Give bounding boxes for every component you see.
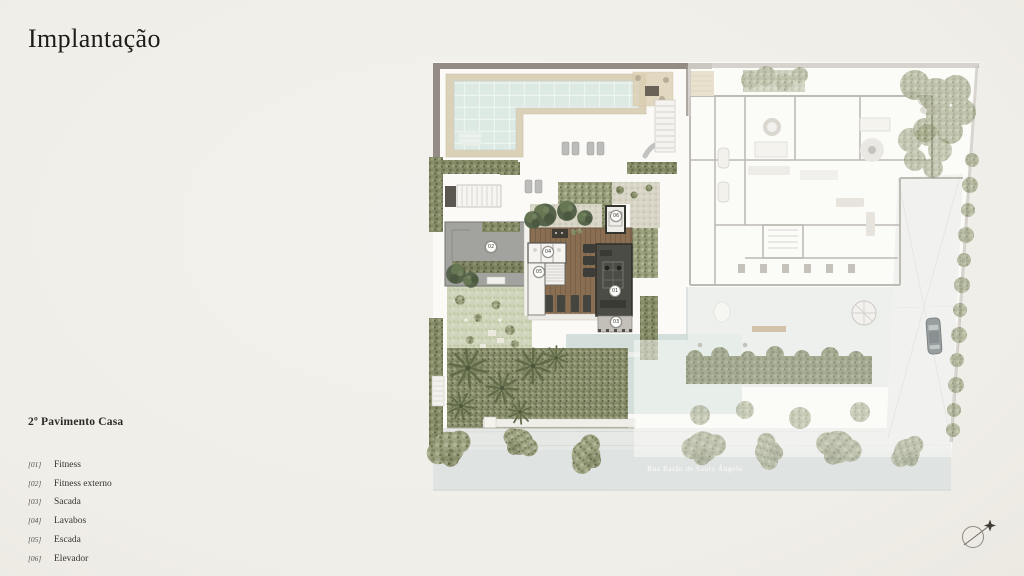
car (926, 318, 942, 355)
legend-item-number: [05] (28, 532, 54, 548)
legend-item-label: Escada (54, 535, 81, 545)
legend-item-number: [02] (28, 476, 54, 492)
plan-marker-03: 03 (610, 316, 622, 328)
north-arrow-icon (984, 520, 996, 532)
site-plan: Rua Barão de Santo Ângelo 010203040506 (0, 0, 1024, 576)
legend: 2º Pavimento Casa [01]Fitness [02]Fitnes… (28, 416, 248, 428)
legend-item-number: [06] (28, 551, 54, 567)
legend-item-label: Elevador (54, 554, 88, 564)
legend-item: [02]Fitness externo (28, 474, 112, 493)
plan-marker-04: 04 (542, 246, 554, 258)
compass (963, 520, 997, 548)
legend-item-label: Fitness (54, 460, 81, 470)
legend-item: [03]Sacada (28, 492, 112, 511)
legend-item: [04]Lavabos (28, 511, 112, 530)
plan-marker-06: 06 (610, 210, 622, 222)
legend-item-number: [01] (28, 457, 54, 473)
plan-marker-01: 01 (609, 285, 621, 297)
legend-item-number: [03] (28, 494, 54, 510)
legend-items: [01]Fitness [02]Fitness externo [03]Saca… (28, 455, 112, 567)
plan-marker-05: 05 (533, 266, 545, 278)
palm-garden (432, 342, 635, 428)
legend-item-label: Fitness externo (54, 479, 112, 489)
legend-item-label: Sacada (54, 497, 81, 507)
pale-garden (447, 286, 532, 350)
gym-room (596, 244, 632, 316)
plan-marker-02: 02 (485, 241, 497, 253)
legend-heading: 2º Pavimento Casa (28, 416, 248, 428)
legend-item: [05]Escada (28, 530, 112, 549)
legend-item-number: [04] (28, 513, 54, 529)
legend-item: [06]Elevador (28, 549, 112, 568)
street-label: Rua Barão de Santo Ângelo (647, 465, 743, 473)
legend-item-label: Lavabos (54, 516, 86, 526)
site-plan-drawing (0, 0, 1024, 576)
legend-item: [01]Fitness (28, 455, 112, 474)
page-title: Implantação (28, 24, 161, 54)
